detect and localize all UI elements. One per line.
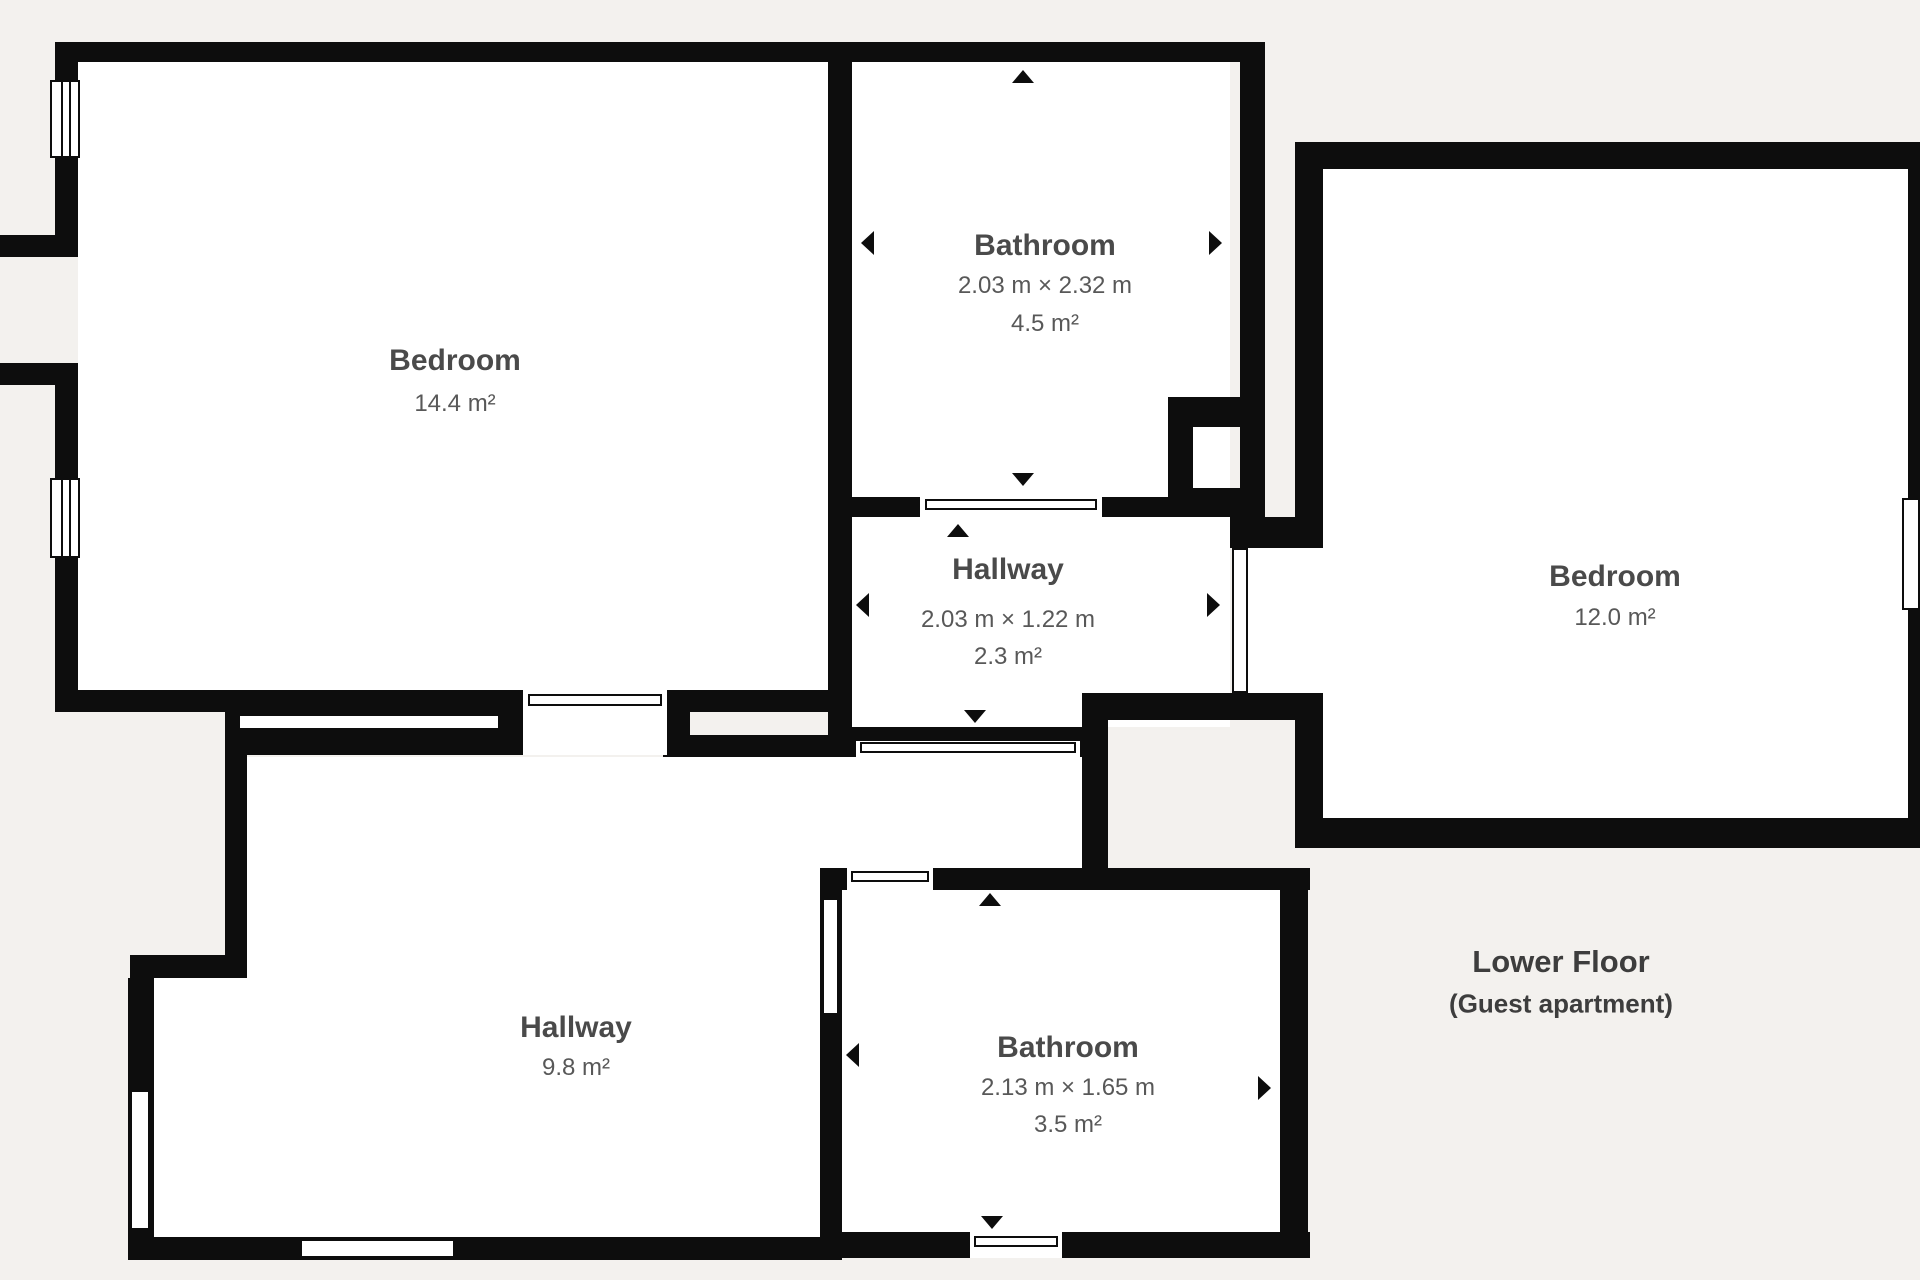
door-leaf — [974, 1236, 1058, 1247]
room-area-bedroom-2: 12.0 m² — [1574, 604, 1655, 632]
window-symbol — [50, 478, 80, 558]
wall — [1082, 693, 1108, 890]
room-dims-bathroom-1: 2.03 m × 2.32 m — [958, 272, 1132, 300]
wall — [128, 1237, 820, 1260]
wall — [130, 955, 247, 978]
wall — [1280, 868, 1308, 1258]
room-label-bathroom-1: Bathroom — [974, 229, 1116, 263]
wall — [1908, 142, 1920, 848]
arrow-left-icon — [856, 593, 869, 617]
arrow-down-icon — [1012, 473, 1034, 486]
wall — [55, 690, 828, 712]
room-label-bedroom-1: Bedroom — [389, 344, 521, 378]
wall — [1240, 42, 1265, 517]
arrow-right-icon — [1258, 1076, 1271, 1100]
arrow-right-icon — [1207, 593, 1220, 617]
wall — [1295, 142, 1920, 169]
wall — [820, 1232, 1310, 1258]
arrow-up-icon — [947, 524, 969, 537]
arrow-right-icon — [1209, 231, 1222, 255]
room-area-hallway-1: 2.3 m² — [974, 643, 1042, 671]
room-hallway-2 — [154, 978, 247, 1237]
door-leaf — [851, 871, 929, 882]
wall — [1295, 818, 1920, 848]
wall — [1082, 693, 1323, 720]
floor-plan: Bedroom 14.4 m² Bathroom 2.03 m × 2.32 m… — [0, 0, 1920, 1280]
room-dims-hallway-1: 2.03 m × 1.22 m — [921, 606, 1095, 634]
room-bedroom-2 — [1323, 169, 1908, 818]
floor-title: Lower Floor — [1472, 944, 1649, 980]
room-area-bathroom-1: 4.5 m² — [1011, 310, 1079, 338]
wall — [225, 712, 247, 978]
room-hallway-2 — [247, 757, 1082, 868]
wall — [663, 735, 837, 757]
floor-subtitle: (Guest apartment) — [1449, 989, 1673, 1020]
door-leaf — [528, 694, 662, 706]
door-leaf — [925, 499, 1097, 510]
wall — [828, 42, 852, 757]
window-symbol — [1232, 548, 1248, 693]
room-area-hallway-2: 9.8 m² — [542, 1054, 610, 1082]
arrow-left-icon — [861, 231, 874, 255]
room-hallway-2 — [247, 868, 820, 1237]
window-symbol — [1902, 498, 1920, 610]
wall — [55, 42, 1265, 62]
room-area-bedroom-1: 14.4 m² — [414, 390, 495, 418]
room-dims-bathroom-2: 2.13 m × 1.65 m — [981, 1074, 1155, 1102]
wall — [1295, 142, 1323, 548]
wall — [1168, 397, 1265, 427]
window-symbol — [50, 80, 80, 158]
arrow-up-icon — [979, 893, 1001, 906]
door-leaf — [860, 742, 1076, 753]
room-label-bathroom-2: Bathroom — [997, 1031, 1139, 1065]
window-symbol — [130, 1090, 150, 1230]
arrow-left-icon — [846, 1043, 859, 1067]
wall — [1168, 427, 1193, 497]
arrow-down-icon — [964, 710, 986, 723]
room-label-hallway-2: Hallway — [520, 1011, 632, 1045]
arrow-down-icon — [981, 1216, 1003, 1229]
room-area-bathroom-2: 3.5 m² — [1034, 1111, 1102, 1139]
wall-slot — [238, 714, 500, 730]
window-symbol — [822, 898, 839, 1015]
arrow-up-icon — [1012, 70, 1034, 83]
room-label-hallway-1: Hallway — [952, 553, 1064, 587]
wall — [0, 235, 78, 257]
passage-bedroom-2-door — [1247, 548, 1323, 693]
room-label-bedroom-2: Bedroom — [1549, 560, 1681, 594]
window-symbol — [300, 1239, 455, 1258]
